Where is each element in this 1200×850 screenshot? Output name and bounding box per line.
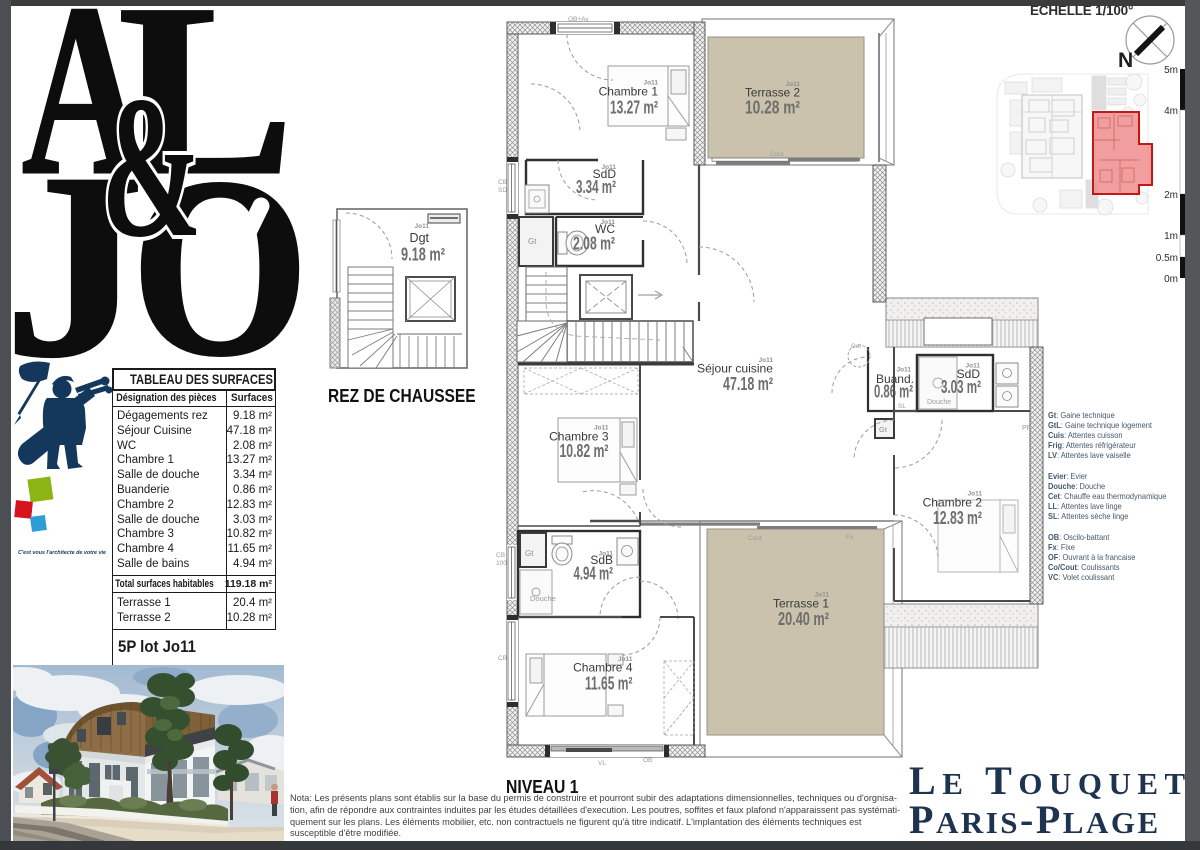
- svg-text:Fx: Fx: [846, 534, 854, 541]
- svg-text:47.18 m²: 47.18 m²: [723, 374, 773, 394]
- svg-text:Cout: Cout: [770, 151, 784, 158]
- svg-text:10.82 m²: 10.82 m²: [560, 441, 609, 461]
- svg-text:Gt: Gt: [525, 549, 534, 558]
- svg-text:Cet: Cet: [851, 343, 861, 350]
- svg-text:Dgt: Dgt: [410, 231, 430, 245]
- svg-text:3.03 m²: 3.03 m²: [941, 377, 981, 397]
- svg-text:4.94 m²: 4.94 m²: [574, 564, 614, 584]
- svg-text:OB: OB: [643, 757, 652, 764]
- svg-text:12.83 m²: 12.83 m²: [933, 508, 982, 528]
- svg-text:10.28 m²: 10.28 m²: [745, 98, 800, 118]
- svg-text:C'est vous l'architecte de vot: C'est vous l'architecte de votre vie: [18, 550, 106, 556]
- svg-text:Gt: Gt: [528, 237, 537, 246]
- svg-text:N: N: [1118, 49, 1133, 72]
- svg-text:SD: SD: [498, 187, 507, 194]
- svg-text:Gt: Gt: [879, 425, 888, 434]
- svg-text:CB: CB: [498, 655, 507, 662]
- svg-text:Jo11: Jo11: [415, 223, 430, 230]
- svg-text:Chambre 4: Chambre 4: [573, 661, 633, 675]
- svg-text:Douche: Douche: [927, 399, 951, 406]
- svg-text:PF: PF: [1022, 425, 1031, 432]
- svg-text:&: &: [101, 54, 202, 279]
- svg-text:OB+Av: OB+Av: [568, 16, 589, 23]
- svg-text:2.08 m²: 2.08 m²: [573, 234, 615, 254]
- svg-text:13.27 m²: 13.27 m²: [610, 98, 658, 118]
- svg-text:Cout: Cout: [748, 535, 762, 542]
- svg-text:3.34 m²: 3.34 m²: [576, 177, 616, 197]
- svg-text:9.18 m²: 9.18 m²: [401, 245, 445, 265]
- svg-text:0m: 0m: [1164, 274, 1178, 285]
- svg-text:0.5m: 0.5m: [1156, 253, 1178, 264]
- svg-text:CB: CB: [496, 552, 505, 559]
- svg-text:Douche: Douche: [530, 594, 556, 603]
- svg-text:100: 100: [496, 560, 507, 567]
- svg-text:SL: SL: [898, 403, 906, 410]
- svg-text:11.65 m²: 11.65 m²: [585, 674, 633, 694]
- svg-text:CB: CB: [498, 179, 507, 186]
- svg-text:4m: 4m: [1164, 106, 1178, 117]
- svg-text:2m: 2m: [1164, 190, 1178, 201]
- svg-text:5m: 5m: [1164, 65, 1178, 76]
- svg-text:VL: VL: [598, 760, 606, 767]
- svg-text:1m: 1m: [1164, 231, 1178, 242]
- svg-text:Chambre 1: Chambre 1: [599, 85, 659, 99]
- svg-text:20.40 m²: 20.40 m²: [778, 609, 829, 629]
